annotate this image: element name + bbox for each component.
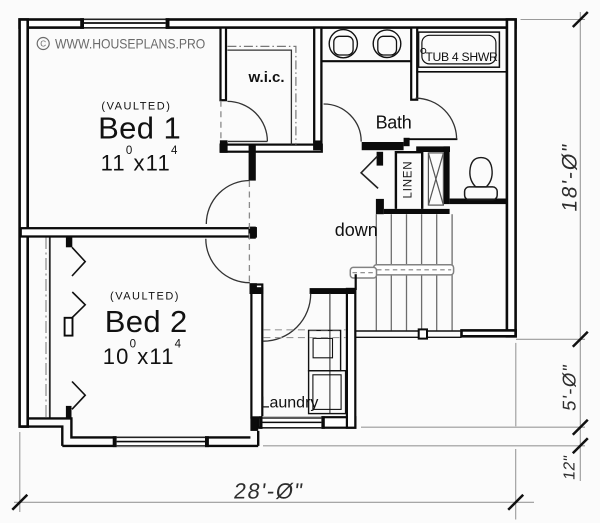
svg-text:5'-Ø": 5'-Ø" xyxy=(559,362,580,412)
svg-text:LINEN: LINEN xyxy=(403,161,415,199)
svg-text:down: down xyxy=(335,220,378,240)
svg-text:Bath: Bath xyxy=(376,113,412,133)
svg-text:w.i.c.: w.i.c. xyxy=(247,69,284,86)
svg-text:TUB 4 SHWR.: TUB 4 SHWR. xyxy=(425,50,500,64)
svg-text:18'-Ø": 18'-Ø" xyxy=(559,141,582,213)
svg-text:Laundry: Laundry xyxy=(261,395,319,412)
svg-text:C: C xyxy=(40,39,46,48)
svg-text:110x114: 110x114 xyxy=(101,145,179,176)
svg-text:Bed 1: Bed 1 xyxy=(98,111,181,146)
svg-text:WWW.HOUSEPLANS.PRO: WWW.HOUSEPLANS.PRO xyxy=(55,36,205,52)
svg-text:12": 12" xyxy=(561,454,579,481)
svg-text:Bed 2: Bed 2 xyxy=(105,304,188,339)
svg-text:(VAULTED): (VAULTED) xyxy=(110,291,180,303)
svg-text:100x114: 100x114 xyxy=(103,339,183,370)
svg-text:28'-Ø": 28'-Ø" xyxy=(232,479,305,504)
